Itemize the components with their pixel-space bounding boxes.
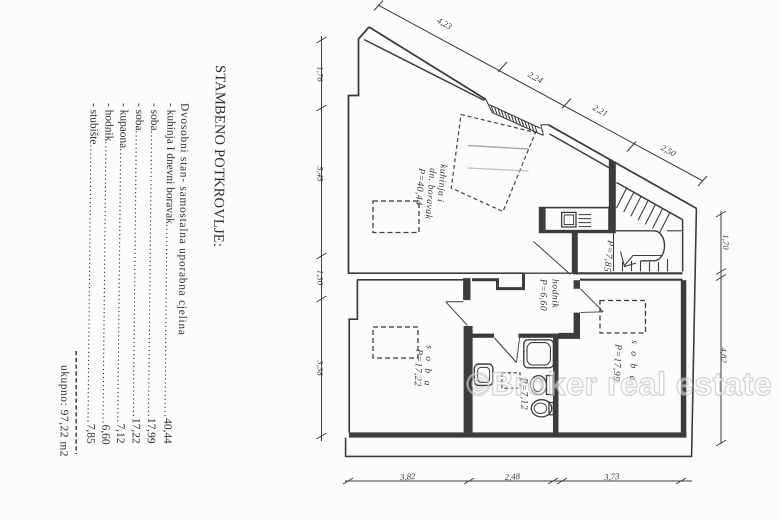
- svg-text:- hodnik......................: - hodnik................................…: [99, 103, 115, 445]
- svg-text:1,70: 1,70: [721, 234, 731, 250]
- svg-text:- stubište....................: - stubište..............................…: [84, 103, 100, 444]
- svg-text:- soba........................: - soba..................................…: [130, 103, 146, 444]
- svg-text:3,38: 3,38: [316, 359, 326, 376]
- svg-text:- kupaona.....................: - kupaona...............................…: [114, 103, 130, 444]
- svg-text:3,82: 3,82: [399, 471, 417, 482]
- svg-text:hodnik: hodnik: [550, 279, 561, 308]
- svg-text:STAMBENO POTKROVLJE:: STAMBENO POTKROVLJE:: [210, 65, 228, 247]
- svg-text:4,23: 4,23: [435, 15, 454, 32]
- svg-text:- soba........................: - soba..................................…: [145, 103, 161, 444]
- svg-text:1,76: 1,76: [316, 66, 326, 82]
- svg-text:2,24: 2,24: [526, 69, 545, 86]
- svg-text:4,82: 4,82: [719, 347, 729, 363]
- svg-text:P=40,44: P=40,44: [413, 167, 427, 206]
- svg-text:1,30: 1,30: [316, 270, 326, 286]
- svg-text:2,21: 2,21: [591, 102, 609, 118]
- svg-text:5,45: 5,45: [316, 166, 326, 182]
- svg-text:Dvosobni stan- samostalna upor: Dvosobni stan- samostalna uporabna cjeli…: [176, 103, 190, 336]
- svg-text:P=6,60: P=6,60: [538, 278, 549, 311]
- svg-text:ukupno: 97,22 m2: ukupno: 97,22 m2: [57, 365, 70, 457]
- svg-text:2,48: 2,48: [504, 471, 521, 482]
- svg-text:P=17,22: P=17,22: [412, 348, 425, 387]
- svg-text:2,50: 2,50: [659, 142, 678, 159]
- svg-text:3,73: 3,73: [603, 471, 621, 482]
- svg-text:- kuhinja I dnevni boravak....: - kuhinja I dnevni boravak..............…: [161, 103, 177, 444]
